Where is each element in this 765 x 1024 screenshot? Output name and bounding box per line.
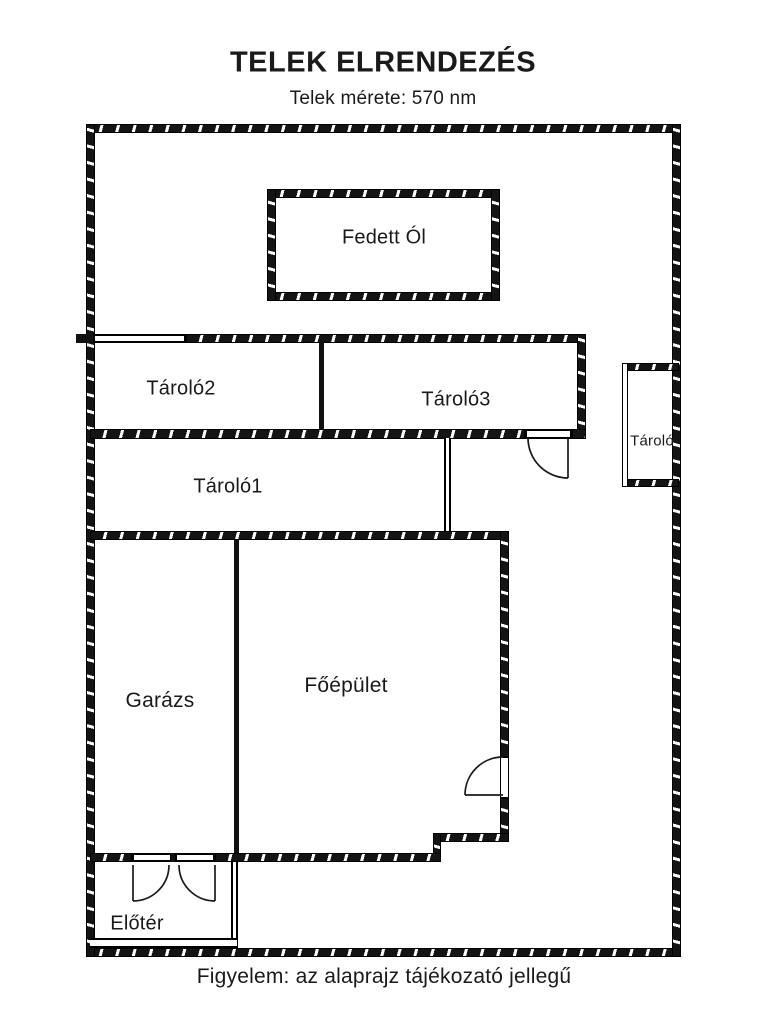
door-arc-foepulet — [465, 757, 503, 795]
opening-storage-top — [93, 334, 186, 343]
disclaimer-note: Figyelem: az alaprajz tájékozató jellegű — [197, 965, 572, 989]
wall-fedett-ol-bottom — [267, 292, 500, 301]
room-label-tarolo3: Tároló3 — [421, 389, 490, 412]
room-label-garazs: Garázs — [126, 689, 195, 713]
room-label-fedett-ol: Fedett Ól — [342, 227, 426, 250]
wall-eloter-right — [231, 862, 238, 948]
wall-fedett-ol-right — [491, 189, 500, 301]
wall-storage-top — [186, 334, 586, 343]
room-label-eloter: Előtér — [110, 913, 163, 936]
wall-plot-bottom — [86, 948, 681, 957]
door-arc-tarolo3 — [528, 438, 568, 478]
wall-tarolo-small-bottom — [622, 479, 679, 487]
wall-storage-divider — [319, 341, 324, 431]
wall-plot-left — [86, 124, 95, 957]
room-label-tarolo2: Tároló2 — [146, 378, 215, 401]
door-arc-eloter-right — [179, 865, 215, 901]
opening-tarolo3-door — [525, 429, 572, 439]
opening-double-door-right — [175, 853, 215, 862]
opening-foepulet-door — [500, 757, 509, 798]
wall-plot-right — [672, 124, 681, 957]
wall-garage-divider — [234, 540, 239, 853]
wall-tarolo-small-top — [622, 363, 679, 371]
wall-plot-top — [86, 124, 681, 133]
room-label-tarolo1: Tároló1 — [193, 476, 262, 499]
opening-double-door-left — [132, 853, 172, 862]
door-swings-overlay — [0, 0, 765, 1024]
door-arc-eloter-left — [133, 865, 169, 901]
wall-storage-right — [577, 334, 586, 438]
wall-main-right-upper — [500, 531, 509, 757]
site-plan-page: TELEK ELRENDEZÉS Telek mérete: 570 nm Fe… — [0, 0, 765, 1024]
page-subtitle: Telek mérete: 570 nm — [290, 88, 477, 110]
wall-storage-bottom-left — [90, 429, 525, 439]
wall-main-bottom-right — [433, 833, 509, 842]
room-label-tarolo-small: Tároló — [630, 433, 674, 450]
page-title: TELEK ELRENDEZÉS — [230, 47, 536, 80]
wall-storage-stub — [76, 334, 90, 343]
wall-fedett-ol-left — [267, 189, 276, 301]
wall-main-top — [90, 531, 509, 540]
room-label-foepulet: Főépület — [304, 674, 387, 698]
wall-storage-bottom-right — [572, 429, 586, 439]
wall-fedett-ol-top — [267, 189, 500, 198]
wall-eloter-bottom — [90, 938, 237, 948]
wall-main-bottom-left — [90, 853, 132, 862]
wall-tarolo1-right — [444, 438, 451, 533]
opening-tarolo-small-left — [622, 363, 628, 487]
wall-main-bottom-mid — [215, 853, 441, 862]
